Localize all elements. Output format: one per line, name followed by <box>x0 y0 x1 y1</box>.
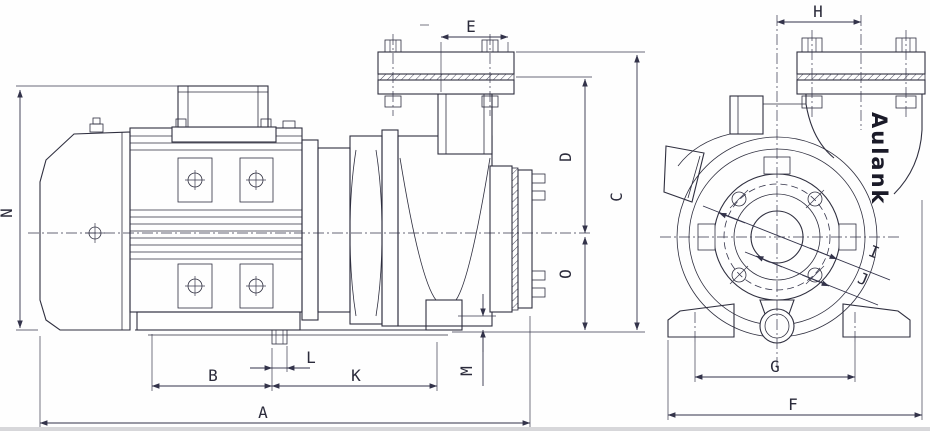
pump-dimension-drawing: Aulank <box>0 0 930 431</box>
discharge-neck <box>730 94 922 194</box>
motor-fins <box>130 136 302 259</box>
motor-body <box>130 128 302 312</box>
brand-text: Aulank <box>867 112 891 206</box>
dim-label-d: D <box>556 152 575 162</box>
parting-flange-tab <box>664 146 704 202</box>
bracket <box>302 136 382 324</box>
baseplate <box>135 330 455 344</box>
dim-label-f: F <box>788 395 798 414</box>
drain-stub <box>272 330 287 344</box>
dim-label-o: O <box>556 269 575 279</box>
side-view <box>40 34 545 344</box>
dim-label-b: B <box>208 366 218 385</box>
pump-casing-side <box>382 130 492 330</box>
dim-label-h: H <box>813 2 823 21</box>
foot-left <box>668 304 734 337</box>
dim-label-c: C <box>607 192 626 202</box>
dim-label-n: N <box>0 208 16 218</box>
foot-right <box>843 304 910 337</box>
gasket-hatch <box>378 74 514 80</box>
lifting-lug <box>90 124 103 132</box>
drawing-canvas: Aulank <box>0 0 930 431</box>
suction-flange <box>490 166 545 312</box>
front-view: Aulank <box>664 30 925 345</box>
side-block <box>730 96 763 134</box>
terminal-box <box>172 86 276 142</box>
dim-label-a: A <box>258 403 268 422</box>
dim-label-m: M <box>457 366 476 376</box>
dim-label-e: E <box>466 17 476 36</box>
dim-label-l: L <box>306 348 316 367</box>
dim-label-j: J <box>855 268 871 289</box>
dim-label-k: K <box>351 366 361 385</box>
motor-feet <box>137 312 300 330</box>
dim-label-g: G <box>770 357 780 376</box>
dim-label-i: I <box>866 241 882 262</box>
drawing-border-bottom <box>0 427 930 431</box>
motor-rear-cap <box>40 132 130 330</box>
